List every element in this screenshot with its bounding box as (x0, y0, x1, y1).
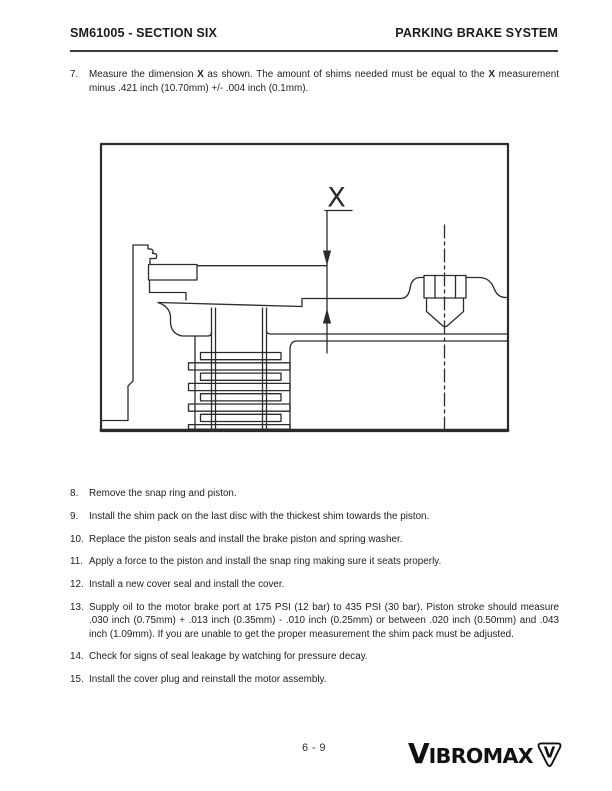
vibromax-logo: VIBROMAX V (408, 736, 562, 768)
housing-wall (102, 245, 149, 421)
header-divider (70, 50, 558, 52)
brand-initial: V (408, 740, 430, 768)
step-9: 9. Install the shim pack on the last dis… (70, 510, 559, 523)
step-text: Measure the dimension X as shown. The am… (89, 68, 559, 95)
dimension-x-label: X (327, 183, 346, 214)
step-15: 15. Install the cover plug and reinstall… (70, 673, 559, 686)
brand-wordmark: IBROMAX (429, 744, 533, 768)
step-11: 11. Apply a force to the piston and inst… (70, 555, 559, 568)
procedure-steps: 8. Remove the snap ring and piston. 9. I… (70, 487, 559, 696)
step-10: 10. Replace the piston seals and install… (70, 533, 559, 546)
step-13: 13. Supply oil to the motor brake port a… (70, 601, 559, 641)
cross-section-drawing: X (98, 141, 512, 438)
step-8: 8. Remove the snap ring and piston. (70, 487, 559, 500)
svg-text:V: V (544, 745, 556, 762)
cover-surface (158, 278, 424, 307)
piston-skirt (158, 303, 212, 337)
step-number: 7. (70, 68, 89, 95)
page-header: SM61005 - SECTION SIX PARKING BRAKE SYST… (70, 26, 558, 40)
vibromax-badge-icon: V (537, 741, 562, 768)
cover-underside (267, 331, 509, 334)
disc-stack (189, 353, 291, 430)
drum-wall (290, 341, 508, 429)
wall-notch (148, 245, 157, 265)
snap-ring (149, 265, 198, 281)
pocket-right-rim (466, 278, 508, 298)
step-14: 14. Check for signs of seal leakage by w… (70, 650, 559, 663)
brake-cross-section-figure: X (98, 141, 512, 438)
manual-page: SM61005 - SECTION SIX PARKING BRAKE SYST… (0, 0, 612, 791)
piston-left-step (150, 280, 187, 300)
step-7: 7. Measure the dimension X as shown. The… (70, 68, 559, 95)
doc-code: SM61005 - SECTION SIX (70, 26, 217, 40)
section-title: PARKING BRAKE SYSTEM (395, 26, 558, 40)
step-12: 12. Install a new cover seal and install… (70, 578, 559, 591)
figure-frame (101, 144, 508, 431)
